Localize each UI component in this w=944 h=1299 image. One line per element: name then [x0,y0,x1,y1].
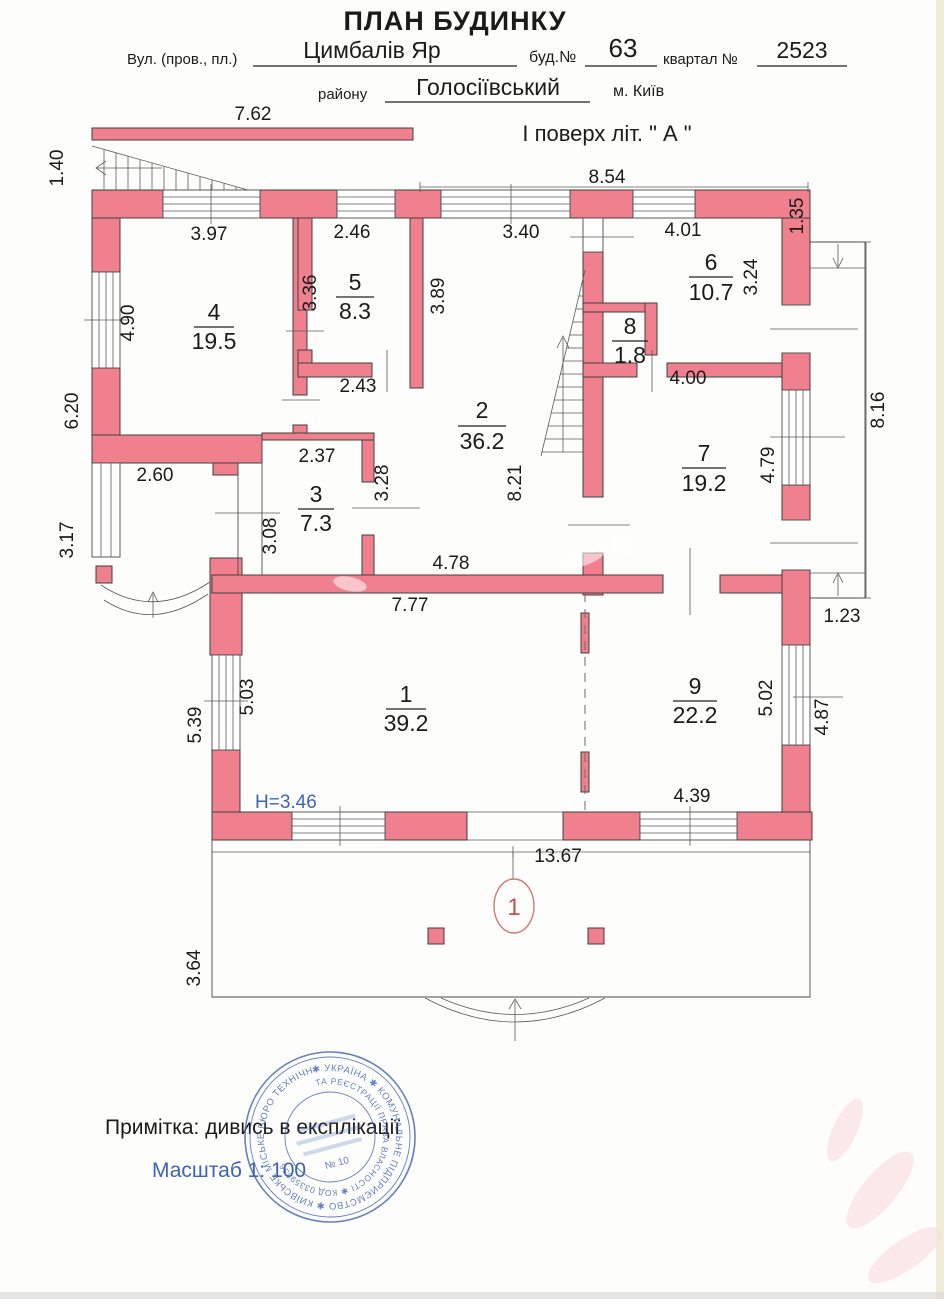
dimension-label: 5.02 [756,680,777,717]
scan-edge-bottom [0,1292,944,1299]
section-mark: 1 [494,879,534,933]
floor-plan-drawing: ПЛАН БУДИНКУ Вул. (пров., пл.) Цимбалів … [0,0,944,1299]
room-number: 6 [705,249,718,275]
room-number: 7 [698,440,711,466]
form-header: ПЛАН БУДИНКУ Вул. (пров., пл.) Цимбалів … [127,6,847,146]
dimension-label: 8.54 [589,167,626,188]
dimension-label: 3.28 [372,465,393,502]
quarter-label: квартал № [663,51,738,68]
floor-title: І поверх літ. " А " [522,121,691,146]
quarter-value: 2523 [776,37,827,63]
dimension-label: 3.08 [260,518,281,555]
terrace [212,840,810,1041]
dimension-label: 4.00 [670,368,707,389]
interior-staircase [541,270,585,456]
dimension-label: 2.37 [299,446,336,467]
dimension-label: 4.90 [118,305,139,342]
room-label-5: 5 8.3 [336,269,374,324]
dimension-label: 3.64 [184,949,205,986]
dimension-label: 2.46 [334,222,371,243]
dimension-label: 4.39 [674,786,711,807]
room-number: 3 [310,481,323,507]
room-area: 7.3 [300,510,332,536]
room-label-4: 4 19.5 [192,299,237,354]
house-value: 63 [609,33,638,63]
dimension-label: 3.24 [741,258,762,295]
room-label-9: 9 22.2 [673,673,718,728]
house-label: буд.№ [529,49,576,66]
dimension-label: 1.35 [787,198,808,235]
stair-up-arrow [557,336,569,452]
dimension-label: 5.39 [185,707,206,744]
dimension-label: 7.62 [235,104,272,125]
exterior-staircase [92,146,248,190]
dimension-label: 2.43 [340,376,377,397]
entrance-porch-steps [101,582,210,618]
dimension-label: 3.97 [191,224,228,245]
room-area: 36.2 [460,428,505,454]
dimension-label: 4.78 [433,553,470,574]
dimension-label: 3.89 [428,278,449,315]
dimension-label: 3.36 [300,275,321,312]
room-label-1: 1 39.2 [384,681,429,736]
page-title: ПЛАН БУДИНКУ [343,6,566,36]
official-round-stamp: ✱ УКРАЇНА ✱ КОМУНАЛЬНЕ ПІДПРИЄМСТВО ✱ КИ… [226,1033,434,1241]
room-area: 39.2 [384,710,429,736]
dimension-label: 4.79 [758,447,779,484]
room-number: 4 [208,299,221,325]
dimension-label: 8.16 [868,392,889,429]
room-number: 8 [624,313,637,339]
dimension-label: 7.77 [392,595,429,616]
room-label-6: 6 10.7 [689,249,734,305]
district-label: району [318,86,368,103]
scanned-floor-plan-page: ПЛАН БУДИНКУ Вул. (пров., пл.) Цимбалів … [0,0,944,1299]
room-area: 1.8 [614,342,646,368]
room-number: 1 [400,681,413,707]
room-area: 22.2 [673,702,718,728]
room-area: 10.7 [689,279,734,305]
dimension-label: 6.20 [62,393,83,430]
street-value: Цимбалів Яр [303,37,440,63]
room-number: 2 [476,397,489,423]
dimension-labels: 7.62 1.40 8.54 3.97 2.46 3.40 4.01 1.35 … [47,104,889,986]
dimension-label: 3.17 [57,522,78,559]
room-label-3: 3 7.3 [298,481,334,536]
city-label: м. Київ [613,83,664,100]
room-number: 9 [689,673,702,699]
room-area: 8.3 [339,298,371,324]
dimension-label: 1.23 [824,606,861,627]
room-number: 5 [349,269,362,295]
dimension-label: 5.03 [237,679,258,716]
ceiling-height-note: H=3.46 [255,792,317,813]
dimension-label: 13.67 [534,846,582,867]
section-mark-number: 1 [507,894,520,921]
street-label: Вул. (пров., пл.) [127,51,237,68]
dimension-label: 4.87 [812,699,833,736]
scan-edge-right [936,0,944,1299]
room-area: 19.2 [682,470,727,496]
room-label-2: 2 36.2 [458,397,506,454]
room-label-7: 7 19.2 [682,440,727,496]
room-area: 19.5 [192,328,237,354]
dimension-label: 4.01 [665,220,702,241]
dimension-label: 2.60 [137,465,174,486]
district-value: Голосіївський [416,74,560,100]
east-balcony [810,242,865,598]
watermark-leaves [820,1094,944,1292]
dimension-label: 1.40 [47,150,68,187]
dimension-label: 8.21 [505,465,526,502]
dimension-label: 3.40 [503,222,540,243]
stamp-number: № 10 [324,1155,351,1172]
room-label-8: 8 1.8 [612,313,648,368]
